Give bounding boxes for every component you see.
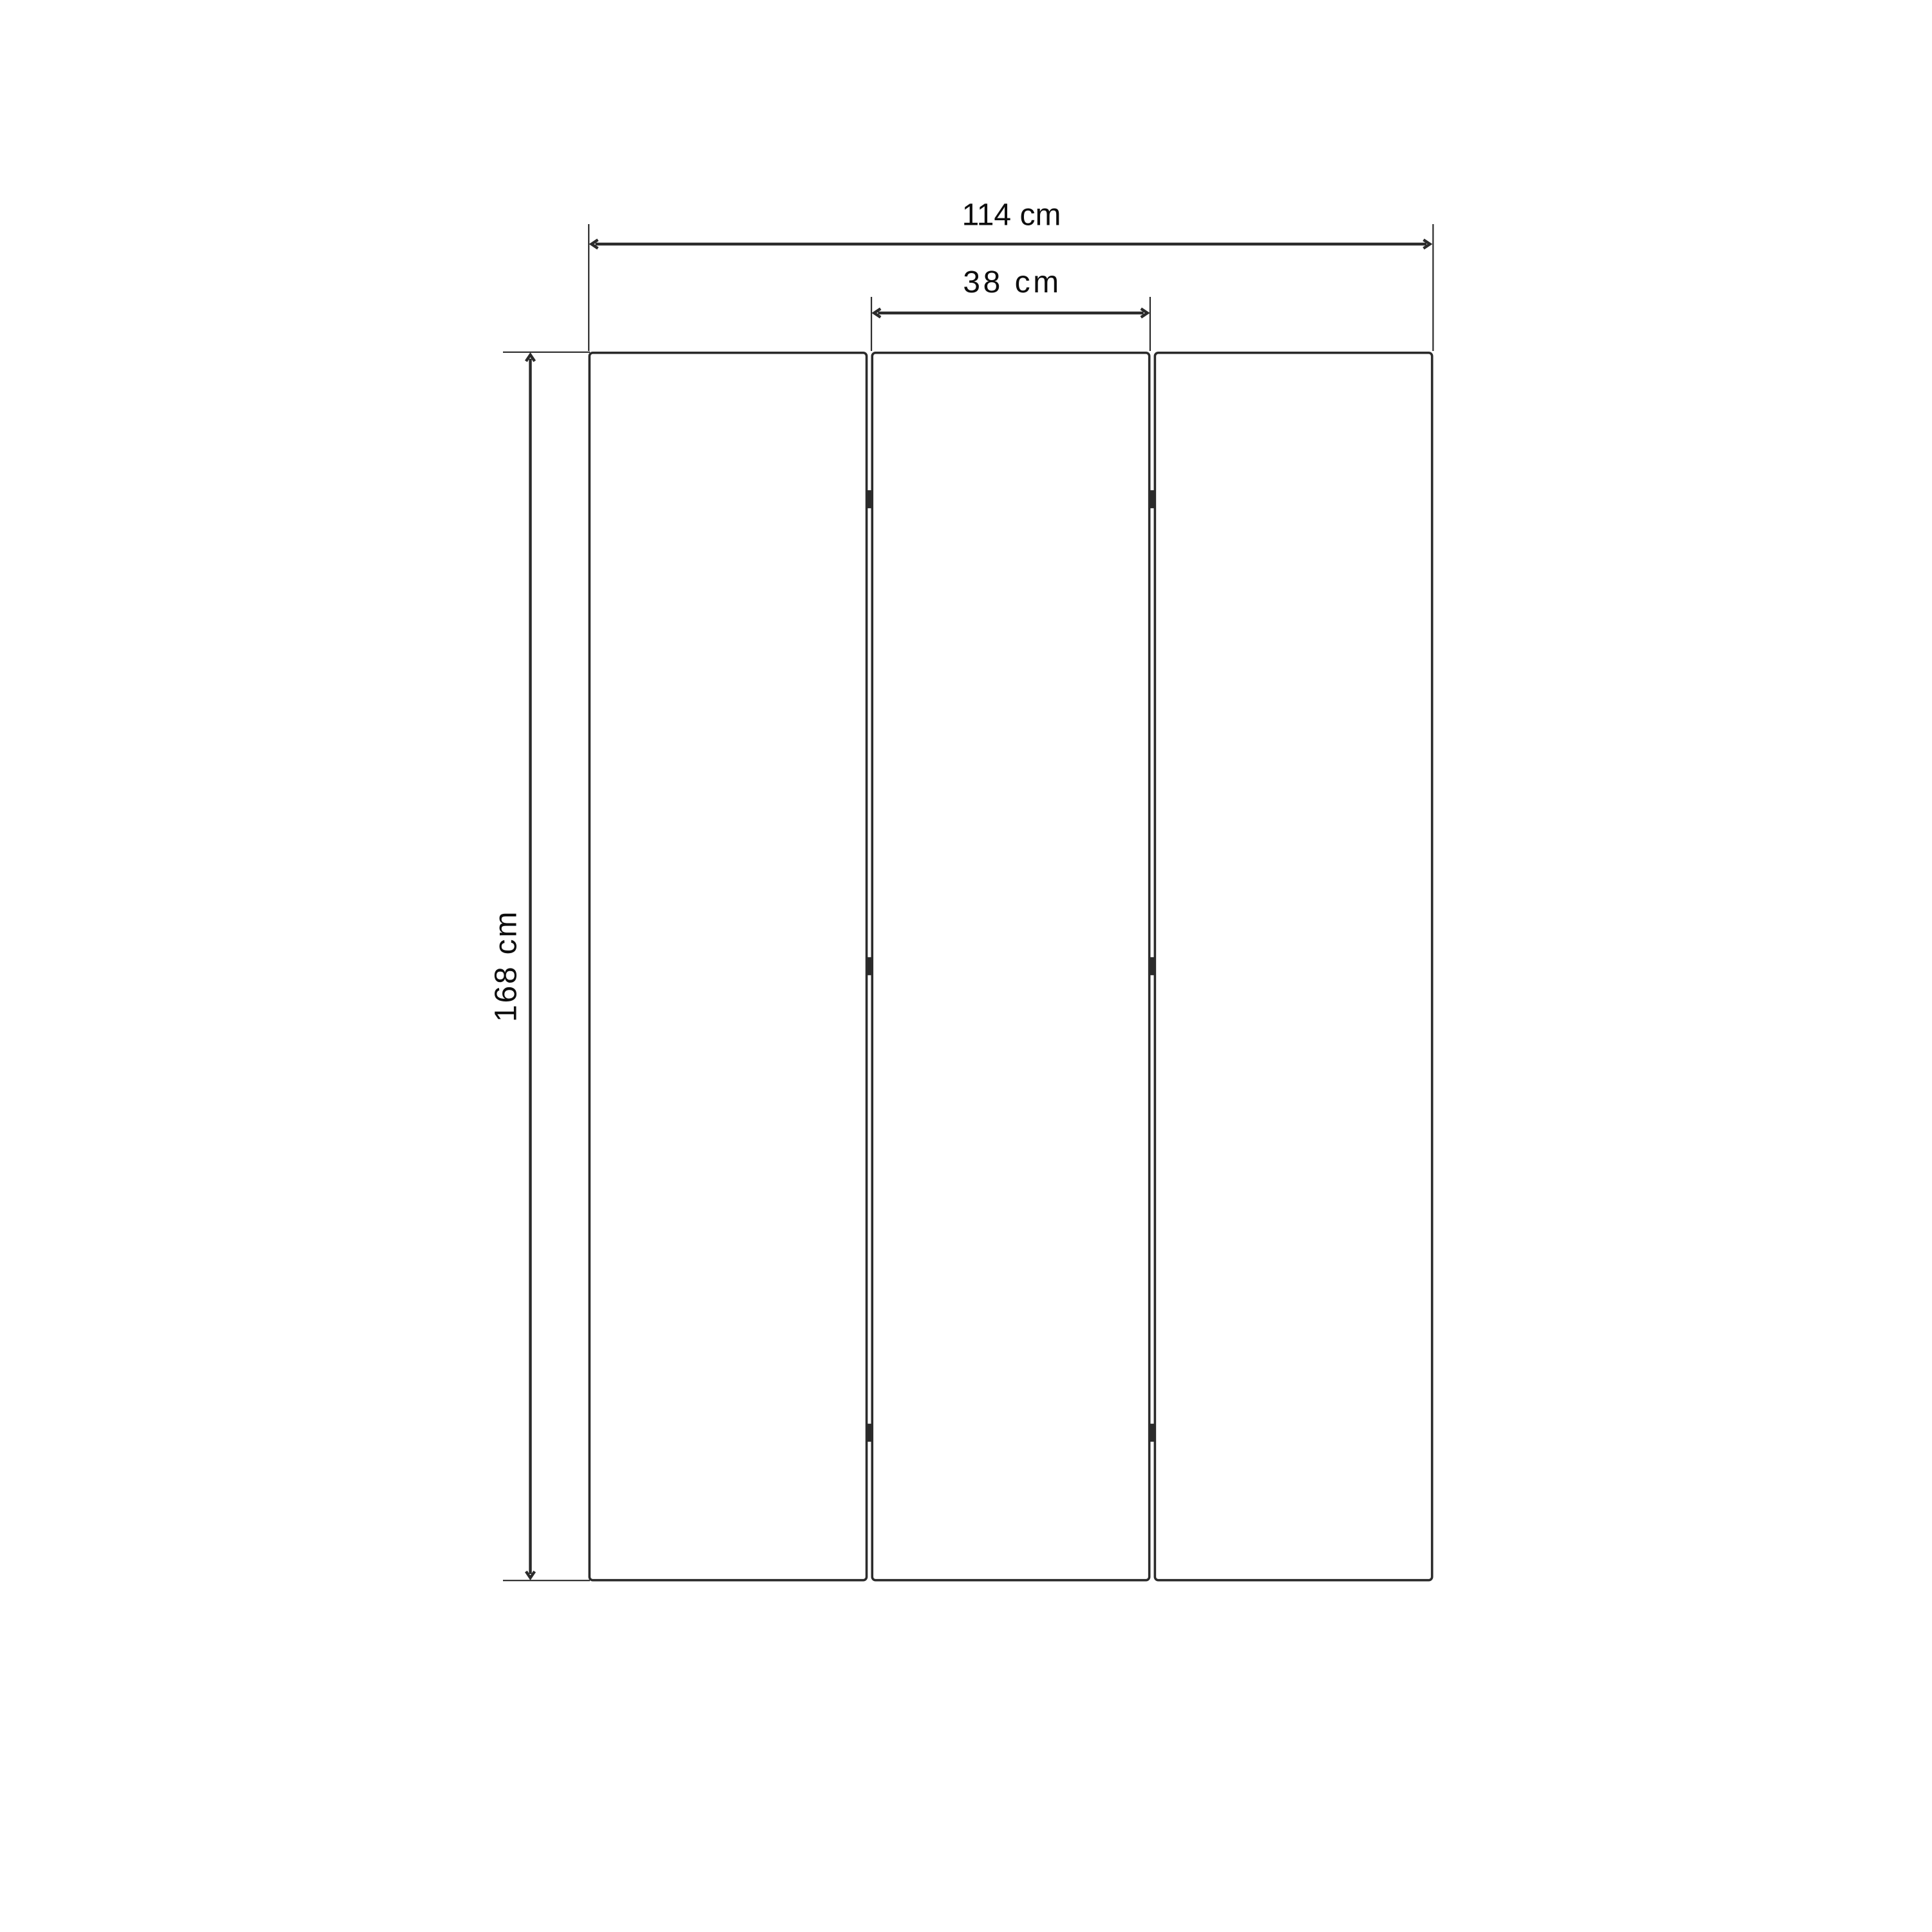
svg-text:114 cm: 114 cm (962, 198, 1061, 232)
svg-text:38 cm: 38 cm (963, 265, 1061, 299)
svg-text:168 cm: 168 cm (489, 910, 524, 1022)
